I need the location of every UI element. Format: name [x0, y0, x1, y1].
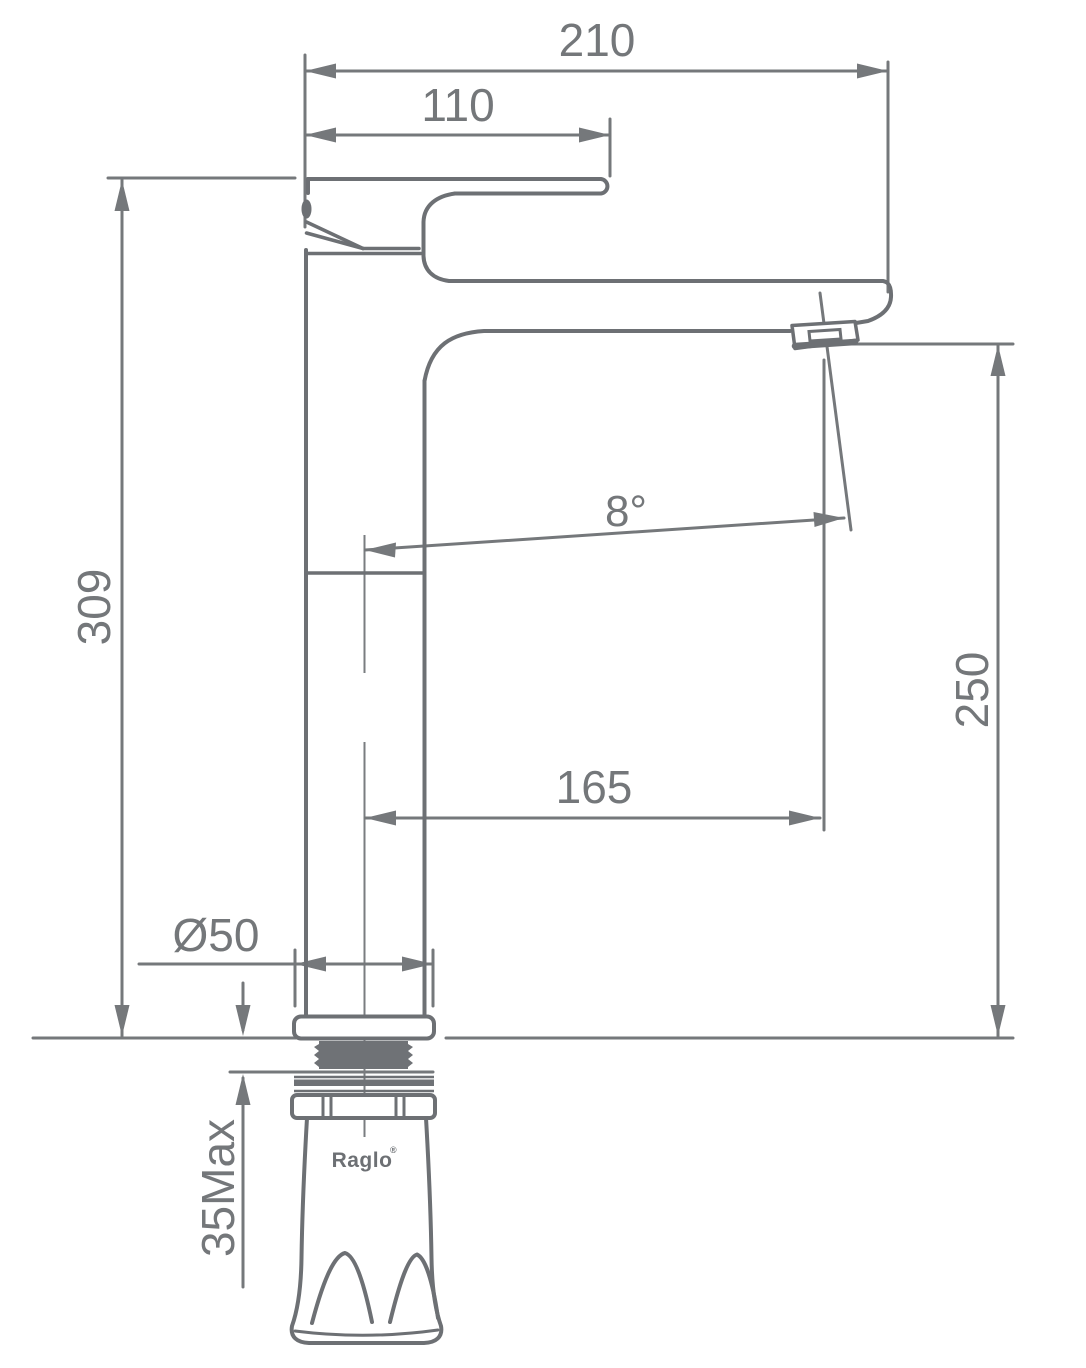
dimension-label-110: 110: [421, 79, 494, 131]
arrowhead: [789, 811, 820, 826]
arrowhead: [236, 1074, 251, 1105]
arrowhead: [857, 64, 888, 79]
faucet-dimension-drawing: 210 110 309 250 165 8° Ø50 35Max: [0, 0, 1086, 1368]
spout-aerator: [792, 322, 858, 349]
arrowhead: [236, 1005, 251, 1036]
dimension-label-35max: 35Max: [192, 1119, 244, 1257]
faucet-lever-handle: [308, 179, 607, 194]
locking-nut: [292, 1095, 435, 1118]
technical-drawing-canvas: 210 110 309 250 165 8° Ø50 35Max: [0, 0, 1086, 1368]
arrowhead: [402, 957, 433, 972]
dimension-label-309: 309: [68, 569, 120, 646]
base-flange: [294, 1017, 434, 1039]
tailpiece-prong-left: [312, 1253, 372, 1323]
mounting-hardware: Raglo ®: [292, 1017, 442, 1344]
arrowhead: [365, 543, 396, 558]
threaded-shank: [314, 1041, 413, 1069]
arrowhead: [579, 128, 610, 143]
faucet-spout-underside: [425, 331, 791, 381]
arrowhead: [305, 128, 336, 143]
arrowhead: [305, 64, 336, 79]
aerator-face: [795, 342, 855, 346]
brand-mark: ®: [390, 1145, 397, 1155]
dimension-lines: [122, 71, 998, 1287]
faucet-outline: [306, 179, 891, 1016]
arrowhead: [365, 811, 396, 826]
arrowhead: [295, 957, 326, 972]
arrowhead: [115, 1005, 130, 1036]
faucet-cap-lines: [306, 222, 421, 254]
brand-logo: Raglo: [332, 1149, 393, 1172]
dimension-label-8deg: 8°: [605, 487, 647, 536]
arrowhead: [991, 1005, 1006, 1036]
dimension-label-250: 250: [946, 652, 998, 729]
arrowhead: [115, 180, 130, 211]
tailpiece-bottom-rim: [295, 1330, 438, 1335]
arrowhead: [991, 345, 1006, 376]
lever-pivot-pin: [302, 200, 312, 219]
dimension-label-165: 165: [556, 761, 633, 813]
dimension-label-d50: Ø50: [173, 909, 260, 961]
dimension-label-210: 210: [559, 14, 636, 66]
